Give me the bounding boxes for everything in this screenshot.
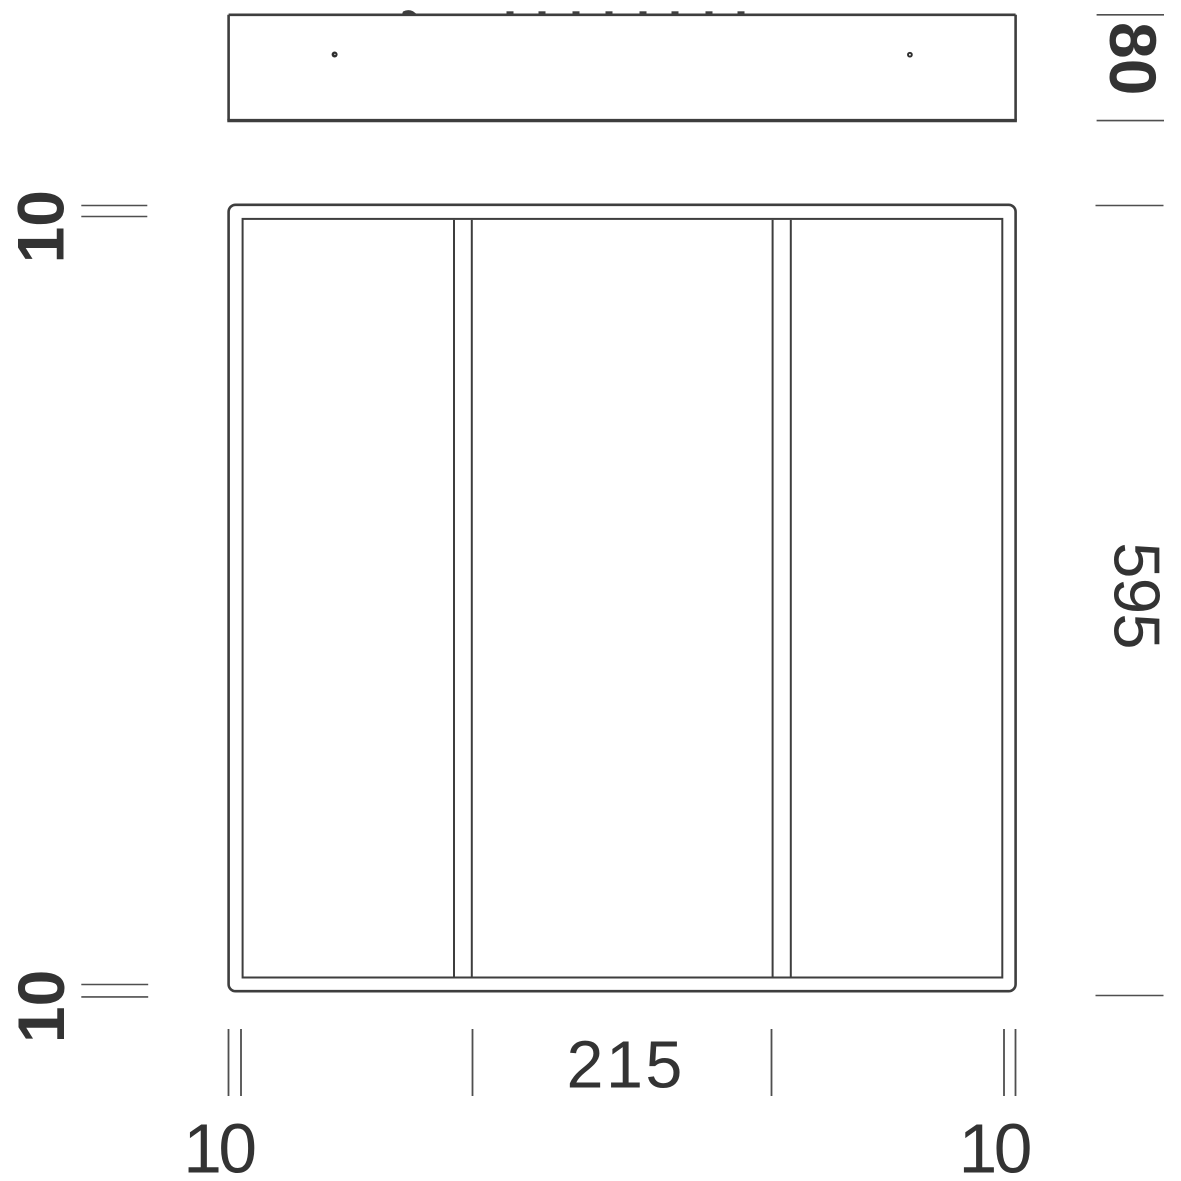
svg-text:10: 10 [959,1110,1030,1181]
svg-text:215: 215 [566,1028,684,1102]
svg-text:10: 10 [183,1110,254,1181]
svg-text:595: 595 [1101,542,1174,649]
svg-text:80: 80 [1096,22,1170,95]
svg-text:10: 10 [4,190,78,263]
svg-text:10: 10 [4,970,78,1043]
